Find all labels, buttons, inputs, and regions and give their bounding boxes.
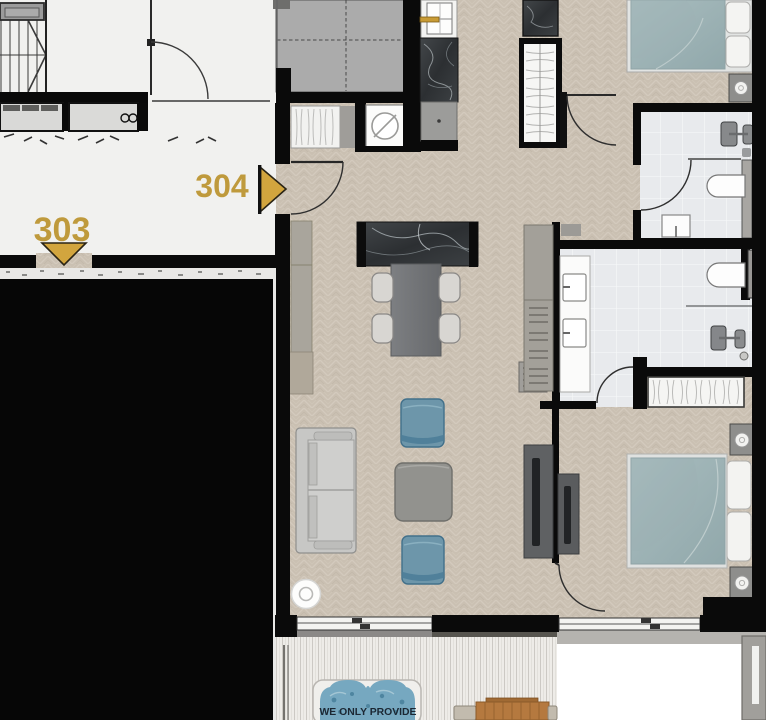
svg-text:WE ONLY PROVIDE: WE ONLY PROVIDE — [319, 707, 416, 718]
svg-text:304: 304 — [195, 168, 249, 204]
